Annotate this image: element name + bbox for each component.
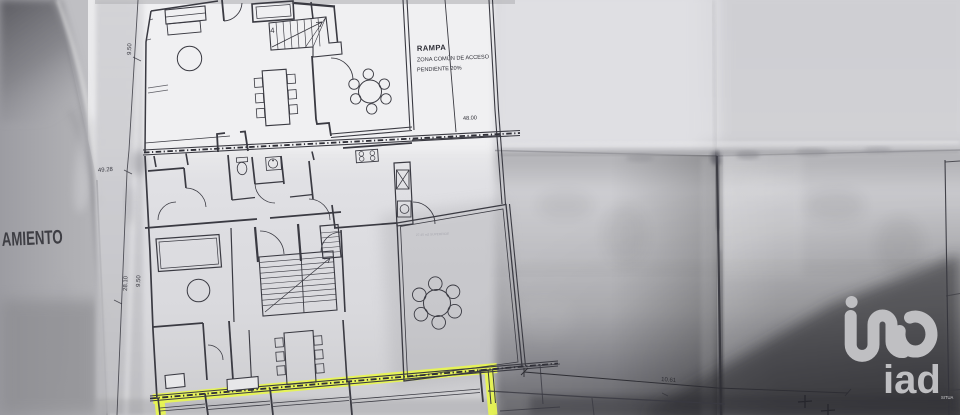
svg-text:AMIENTO: AMIENTO: [1, 226, 63, 251]
svg-text:28.10: 28.10: [123, 275, 130, 291]
svg-text:SITUA: SITUA: [941, 395, 954, 400]
svg-text:4: 4: [270, 26, 275, 35]
svg-text:RAMPA: RAMPA: [417, 43, 447, 53]
svg-text:9.50: 9.50: [136, 275, 142, 288]
svg-text:10.61: 10.61: [661, 377, 677, 384]
svg-text:49.28: 49.28: [98, 167, 114, 174]
svg-text:iad: iad: [883, 358, 941, 402]
svg-text:48.00: 48.00: [463, 115, 477, 122]
svg-text:9.50: 9.50: [127, 43, 133, 56]
